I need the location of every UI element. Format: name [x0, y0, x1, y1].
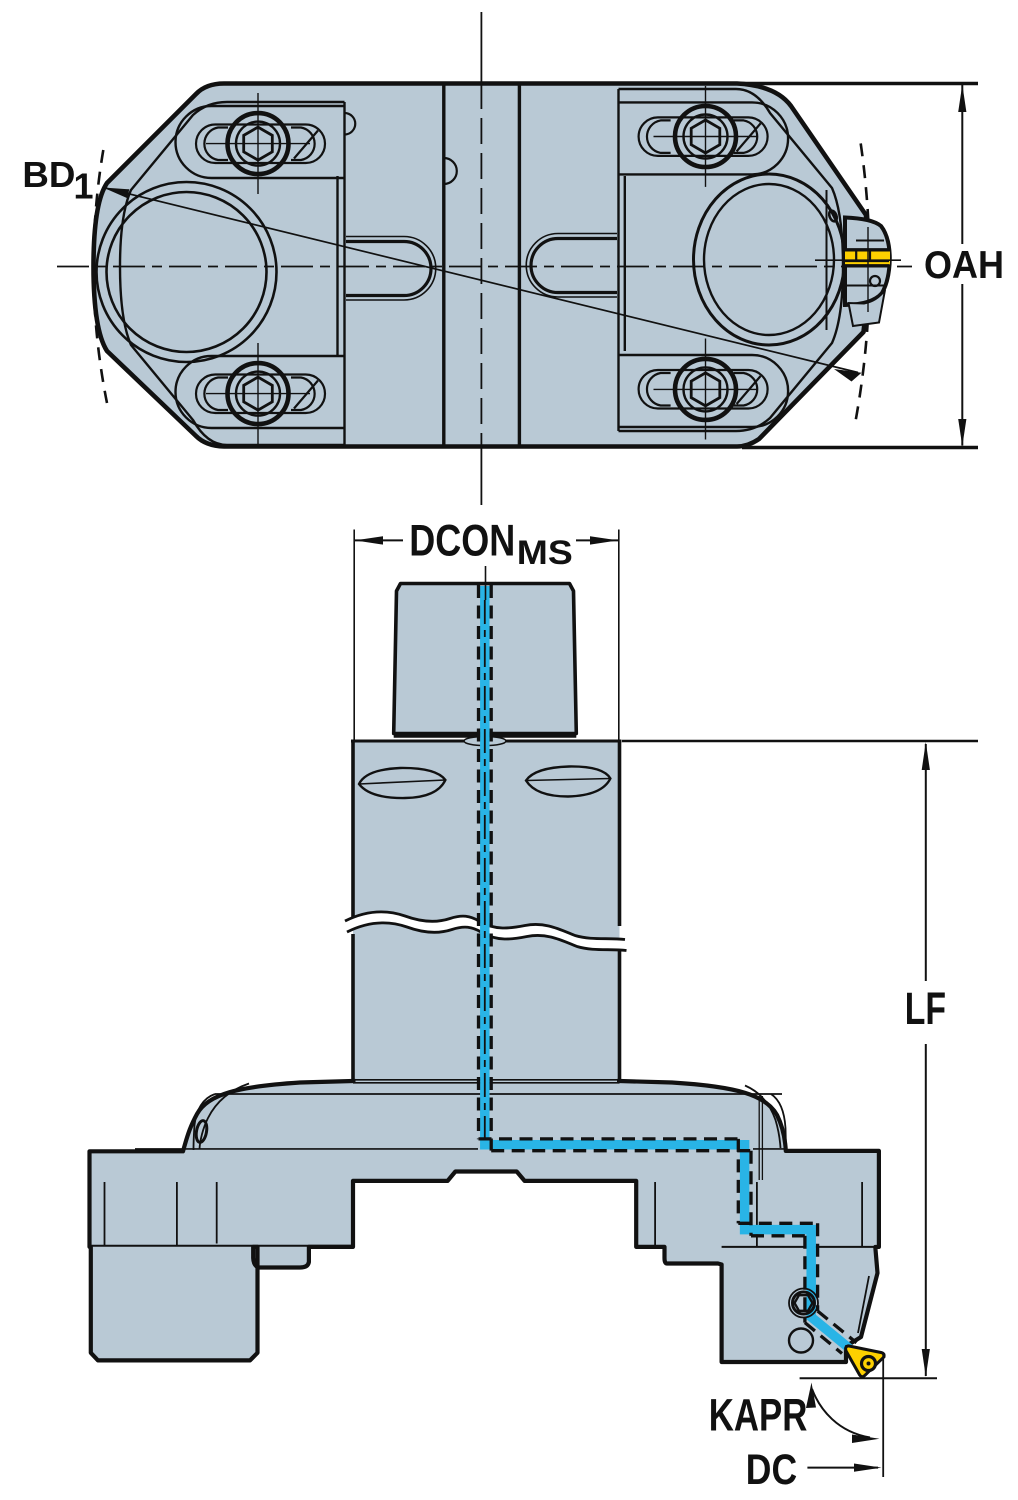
svg-text:1: 1 [74, 166, 94, 207]
svg-text:KAPR: KAPR [709, 1390, 808, 1441]
svg-text:DC: DC [746, 1446, 797, 1493]
svg-text:MS: MS [517, 534, 573, 572]
svg-text:LF: LF [905, 983, 946, 1034]
svg-text:OAH: OAH [924, 244, 1004, 287]
svg-text:DCON: DCON [409, 517, 515, 566]
svg-text:BD: BD [22, 154, 75, 195]
